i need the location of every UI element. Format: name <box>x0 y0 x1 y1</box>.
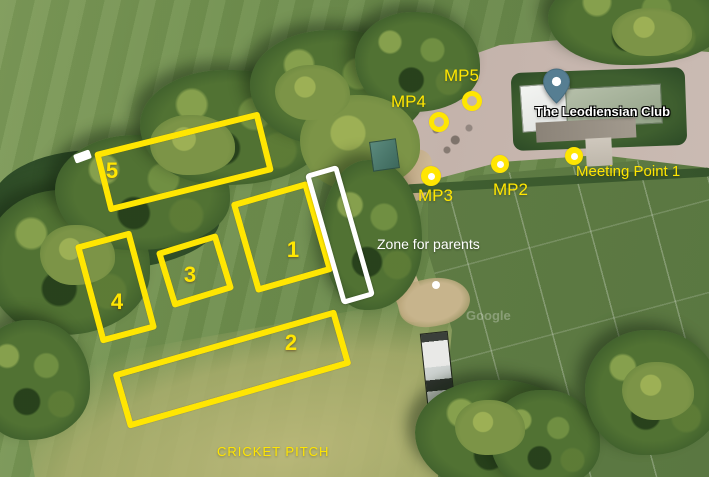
pitch-1-number: 1 <box>287 237 299 263</box>
meeting-point-1-label: Meeting Point 1 <box>576 163 680 180</box>
tree-highlight <box>455 400 525 455</box>
pitch-2-number: 2 <box>285 330 297 356</box>
tree-highlight <box>622 362 694 420</box>
shed <box>369 138 400 171</box>
mp4-label: MP4 <box>391 92 426 112</box>
club-name-label: The Leodiensian Club <box>535 104 670 119</box>
mp3-label: MP3 <box>418 186 453 206</box>
tree-highlight <box>275 65 350 120</box>
club-pin-icon[interactable] <box>542 68 571 104</box>
white-marker-dot <box>432 281 440 289</box>
mp2-dot-marker <box>491 155 509 173</box>
mp5-label: MP5 <box>444 66 479 86</box>
imagery-watermark: Google <box>466 308 511 323</box>
pitch-5-number: 5 <box>106 158 118 184</box>
mp4-ring-marker <box>429 112 449 132</box>
pitch-4-number: 4 <box>111 289 123 315</box>
mp2-label: MP2 <box>493 180 528 200</box>
satellite-map-canvas[interactable]: Google 5 4 3 1 2 MP5 MP4 MP3 MP2 Meeting… <box>0 0 709 477</box>
mp5-ring-marker <box>462 91 482 111</box>
mp3-dot-marker <box>421 166 441 186</box>
parents-zone-label: Zone for parents <box>377 236 480 252</box>
cricket-pitch-label: CRICKET PITCH <box>217 444 329 459</box>
pitch-3-number: 3 <box>184 262 196 288</box>
tree-highlight <box>612 8 692 56</box>
